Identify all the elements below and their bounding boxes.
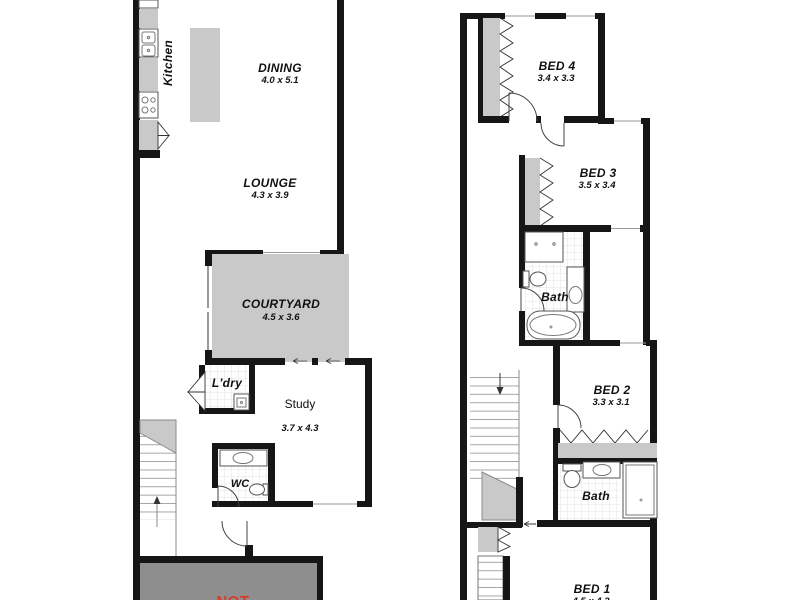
toilet-icon-second-bath [563, 464, 581, 488]
cooktop-icon [139, 92, 158, 118]
room-label-lounge: LOUNGE [243, 176, 297, 190]
entry-door-arc [222, 521, 247, 546]
floorplan-canvas: Kitchen DINING 4.0 x 5.1 LOUNGE 4.3 x 3.… [0, 0, 800, 600]
shower-icon [525, 232, 563, 262]
wall-ground-left [133, 0, 140, 600]
toilet-icon [250, 484, 269, 495]
kitchen-sink-icon [139, 29, 158, 57]
bed1-linen-cupboard [478, 556, 510, 600]
ground-floor-plan: Kitchen DINING 4.0 x 5.1 LOUNGE 4.3 x 3.… [133, 0, 372, 600]
room-label-bath-second: Bath [582, 489, 610, 503]
bed1-wardrobe [478, 527, 510, 552]
room-dims-bed2: 3.3 x 3.1 [593, 397, 630, 408]
bed2-door-arc [558, 405, 581, 428]
room-dims-study: 3.7 x 4.3 [282, 423, 320, 434]
room-label-laundry: L'dry [212, 376, 243, 390]
bathtub-icon [527, 311, 580, 339]
stairs-upper [470, 370, 523, 527]
laundry-door-icon [188, 372, 205, 392]
room-dims-bed4: 3.4 x 3.3 [538, 73, 576, 84]
wall-ground-right [337, 0, 344, 253]
room-label-dining: DINING [258, 61, 302, 75]
vanity-icon-main-bath [567, 267, 584, 312]
shower-icon-second-bath [623, 462, 657, 518]
wall-study-right [365, 358, 372, 507]
wc-basin-icon [220, 450, 267, 466]
toilet-icon-main-bath [523, 271, 546, 287]
bath-main-room [519, 232, 590, 345]
room-label-courtyard: COURTYARD [242, 297, 320, 311]
kitchen-fixtures [133, 0, 220, 158]
room-dims-lounge: 4.3 x 3.9 [251, 190, 290, 201]
room-label-study: Study [285, 397, 316, 411]
bed1-opening-arrow [524, 522, 536, 527]
vanity-icon-second-bath [583, 462, 620, 478]
bed2-wardrobe [558, 430, 657, 458]
floorplan-page: Kitchen DINING 4.0 x 5.1 LOUNGE 4.3 x 3.… [0, 0, 800, 600]
pantry-icon [139, 120, 169, 150]
room-label-bed1: BED 1 [574, 582, 611, 596]
kitchen-island [190, 28, 220, 122]
room-label-wc: WC [231, 478, 250, 490]
room-label-bed3: BED 3 [580, 166, 617, 180]
upper-floor-plan: BED 4 3.4 x 3.3 BED 3 3.5 x 3.4 Bath BED… [460, 13, 657, 600]
room-label-bath-main: Bath [541, 290, 569, 304]
room-dims-bed1: 4.5 x 4.2 [572, 596, 611, 600]
bed3-door-arc [541, 123, 564, 146]
room-label-bed2: BED 2 [594, 383, 631, 397]
laundry-tub-icon [234, 394, 249, 410]
courtyard-glass-door-lower [207, 312, 209, 352]
courtyard-glass-door-upper [207, 266, 209, 308]
room-label-kitchen: Kitchen [161, 40, 175, 86]
room-dims-dining: 4.0 x 5.1 [261, 75, 299, 86]
room-dims-bed3: 3.5 x 3.4 [579, 180, 617, 191]
stairs-ground [140, 420, 177, 557]
wc-room [212, 443, 275, 507]
garage-note-text: NOT [216, 593, 249, 600]
bed3-wardrobe [525, 158, 553, 226]
wall-upper-left [460, 13, 467, 600]
room-dims-courtyard: 4.5 x 3.6 [262, 312, 301, 323]
room-label-bed4: BED 4 [539, 59, 576, 73]
bed4-door-arc [509, 93, 537, 121]
